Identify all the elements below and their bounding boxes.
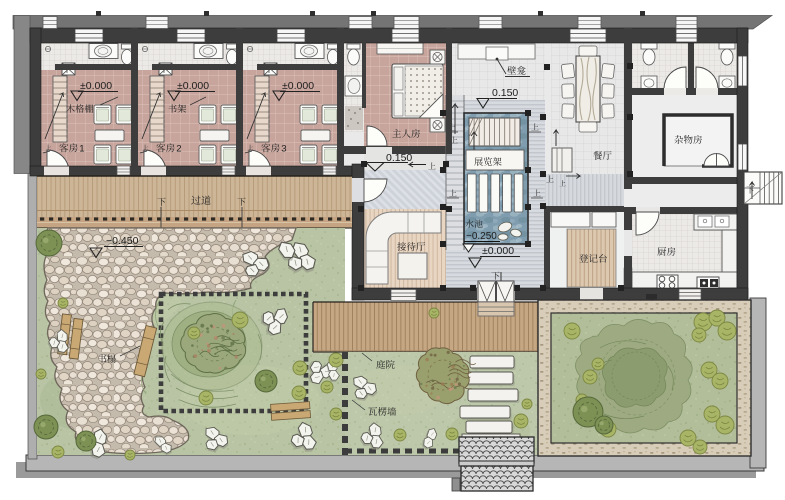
svg-text:2: 2 [176, 144, 181, 155]
svg-text:−0.450: −0.450 [106, 235, 139, 247]
svg-text:−0.250: −0.250 [466, 231, 497, 242]
svg-text:±0.000: ±0.000 [482, 245, 514, 257]
svg-text:±0.000: ±0.000 [177, 80, 209, 92]
svg-text:±0.000: ±0.000 [80, 80, 112, 92]
svg-text:±0.000: ±0.000 [282, 80, 314, 92]
svg-text:1: 1 [79, 144, 84, 155]
svg-text:0.150: 0.150 [492, 87, 518, 99]
svg-text:3: 3 [281, 144, 286, 155]
